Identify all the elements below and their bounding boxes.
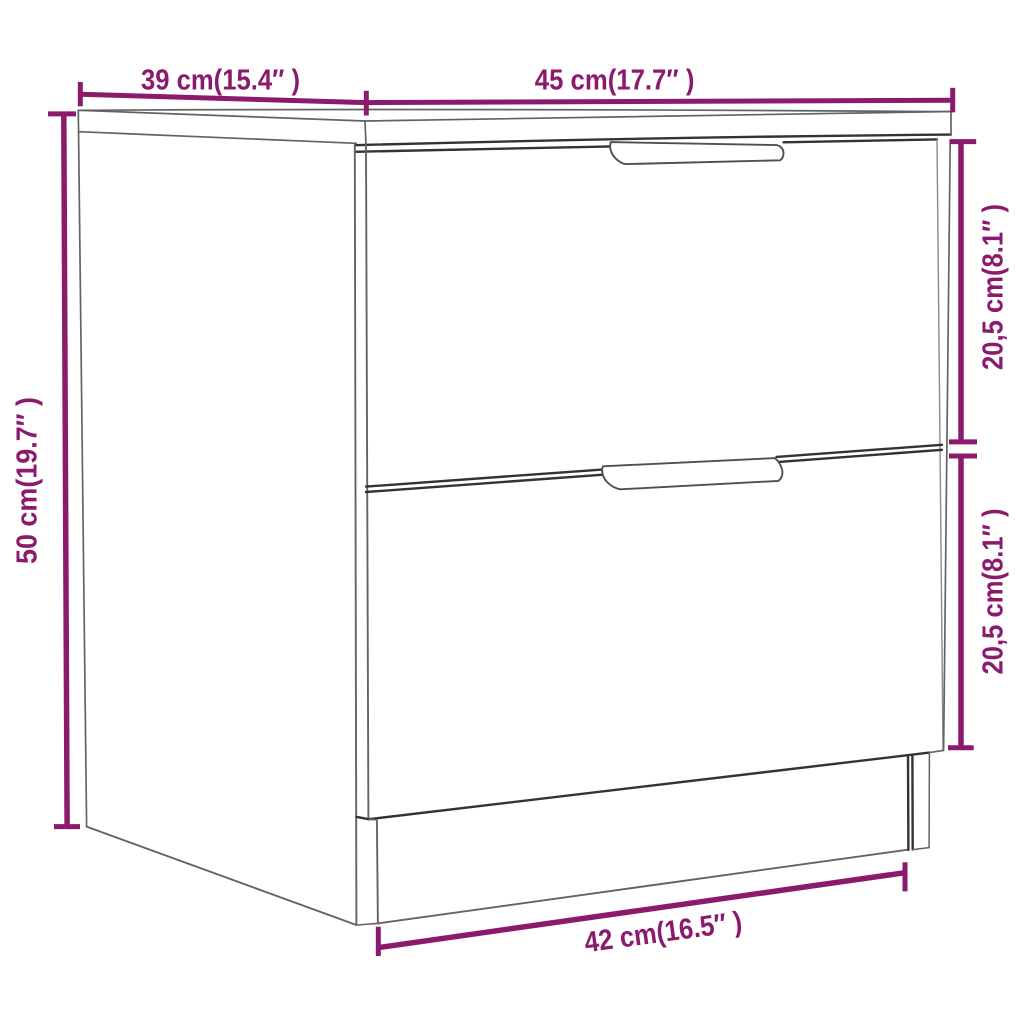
svg-text:20,5 cm(8.1″ ): 20,5 cm(8.1″ ) [978, 509, 1010, 675]
svg-text:39 cm(15.4″ ): 39 cm(15.4″ ) [141, 64, 300, 96]
svg-text:45 cm(17.7″ ): 45 cm(17.7″ ) [535, 64, 695, 96]
svg-text:50 cm(19.7″ ): 50 cm(19.7″ ) [12, 397, 44, 564]
svg-text:20,5 cm(8.1″ ): 20,5 cm(8.1″ ) [978, 204, 1010, 370]
